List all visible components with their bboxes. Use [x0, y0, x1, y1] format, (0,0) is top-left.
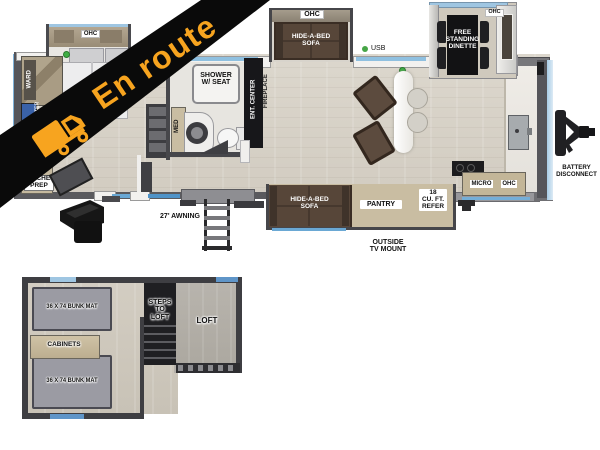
svg-text:En route: En route [86, 7, 224, 116]
